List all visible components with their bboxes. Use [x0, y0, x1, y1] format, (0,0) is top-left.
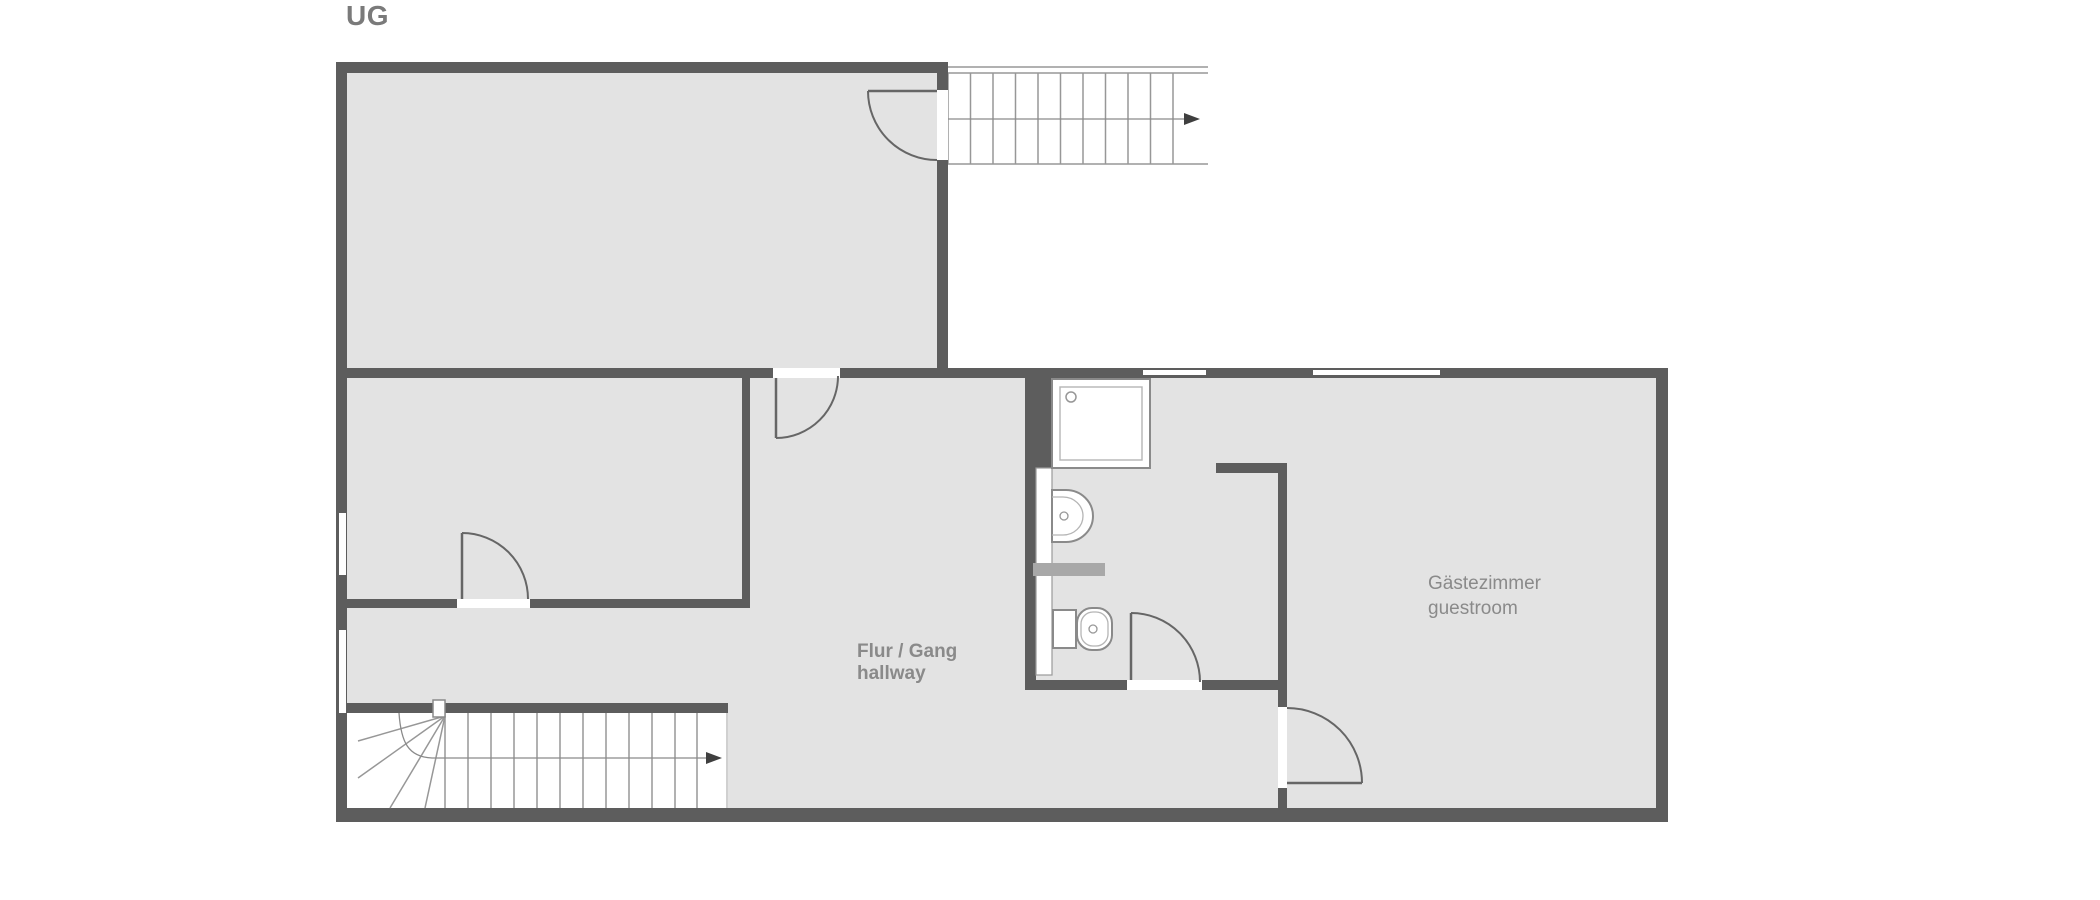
room-label-guestroom: Gästezimmer guestroom	[1428, 571, 1541, 621]
door-opening-room-b	[457, 599, 530, 608]
bathroom-shelf	[1033, 563, 1105, 576]
wall-room-b-right	[742, 368, 750, 608]
upper-staircase	[948, 66, 1208, 166]
window-guestroom-top	[1313, 370, 1440, 375]
toilet-cistern	[1053, 610, 1076, 648]
wall-bottom-exterior	[336, 808, 1668, 822]
floor-title: UG	[346, 4, 389, 27]
wall-right-exterior	[1656, 368, 1668, 822]
shower-drain	[1066, 392, 1076, 402]
window-bath-top	[1143, 370, 1206, 375]
shower	[1052, 379, 1150, 468]
room-label-hallway-en: hallway	[857, 663, 957, 685]
door-opening-bathroom	[1127, 680, 1202, 690]
room-label-guestroom-en: guestroom	[1428, 596, 1541, 621]
wall-guestroom-nook	[1216, 463, 1287, 473]
wall-top-room-a	[336, 62, 948, 73]
door-opening-hallway	[773, 368, 840, 378]
upper-staircase-floor	[948, 66, 1208, 166]
washbasin-drain	[1060, 512, 1068, 520]
toilet-drain	[1089, 625, 1097, 633]
room-label-hallway-de: Flur / Gang	[857, 641, 957, 663]
wall-room-b-bottom	[336, 599, 750, 608]
lower-staircase	[347, 700, 728, 808]
room-label-hallway: Flur / Gang hallway	[857, 641, 957, 685]
door-opening-room-a	[937, 90, 948, 160]
stair-newel-post	[433, 700, 445, 717]
room-label-guestroom-de: Gästezimmer	[1428, 571, 1541, 596]
floor-plan-canvas: UG Flur / Gang hallway Gästezimmer guest…	[0, 0, 2100, 900]
wall-lower-stairs-top	[347, 703, 728, 713]
wall-bath-left-block	[1025, 368, 1052, 468]
floor-plan-drawing	[0, 0, 2100, 900]
window-hallway-left	[339, 630, 346, 713]
door-opening-guestroom	[1278, 707, 1287, 788]
wall-main-horizontal	[336, 368, 1668, 378]
toilet	[1053, 608, 1112, 650]
window-room-b-left	[339, 513, 346, 575]
